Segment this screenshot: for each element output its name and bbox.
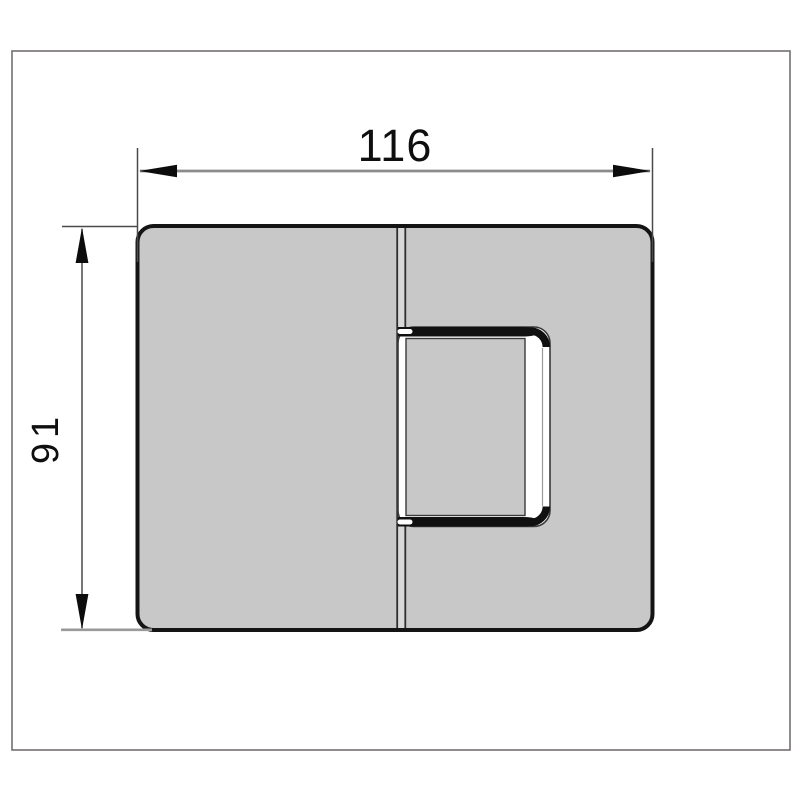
clamp-opening: [406, 339, 525, 516]
height-dimension: 91: [25, 227, 152, 630]
clamp-bottom-bar: [398, 517, 537, 527]
technical-drawing-canvas: 116 91: [0, 0, 800, 800]
height-arrow-bottom: [76, 594, 89, 630]
height-arrow-top: [76, 228, 89, 264]
clamp-highlight-top: [398, 329, 413, 334]
height-dimension-label: 91: [25, 412, 67, 464]
clamp-top-bar: [398, 327, 537, 337]
hinge-body: [138, 226, 653, 630]
width-dimension-label: 116: [358, 120, 433, 171]
clamp-detail: [398, 327, 551, 527]
clamp-highlight-bottom: [398, 520, 413, 525]
hinge-body-plate: [138, 226, 653, 630]
width-arrow-right: [613, 165, 651, 177]
width-arrow-left: [139, 165, 177, 177]
drawing-page: 116 91: [0, 0, 800, 800]
